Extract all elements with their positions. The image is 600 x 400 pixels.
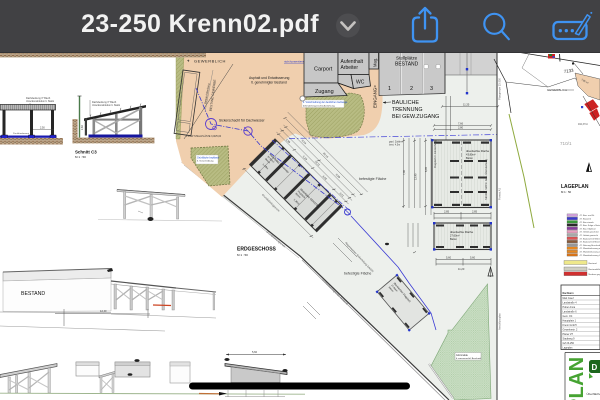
svg-text:43,80m²: 43,80m² [466, 153, 476, 157]
svg-text:23-250 Krenn02.pdf: 23-250 Krenn02.pdf [81, 10, 319, 38]
svg-text:6,95: 6,95 [424, 166, 428, 172]
svg-text:Zugang: Zugang [315, 89, 334, 95]
svg-text:Mair Josef: Mair Josef [563, 297, 574, 300]
svg-text:47. Bau- und St.: 47. Bau- und St. [580, 214, 595, 217]
svg-text:5,60: 5,60 [252, 350, 258, 354]
svg-text:überdachte Fläche: überdachte Fläche [450, 230, 474, 234]
svg-text:47. Bauwerk: 47. Bauwerk [580, 218, 593, 221]
svg-text:Format A1: Format A1 [498, 187, 502, 200]
svg-text:Punktfundament: Punktfundament [13, 132, 29, 135]
svg-text:BEI GEW.ZUGANG: BEI GEW.ZUGANG [392, 114, 439, 120]
svg-text:TRENNUNG: TRENNUNG [392, 107, 423, 113]
svg-text:PLAN: PLAN [566, 357, 588, 400]
svg-text:best. 4,5m: best. 4,5m [389, 143, 400, 146]
svg-text:47. Bauland mit Mischgebiet: 47. Bauland mit Mischgebiet [580, 241, 600, 244]
svg-text:lt. Vorschreibung der deutlich: lt. Vorschreibung der deutlichen Gehwege [303, 101, 348, 104]
svg-text:47. Bau Objektart: 47. Bau Objektart [580, 227, 597, 230]
svg-text:Carport: Carport [314, 67, 333, 73]
svg-text:3: 3 [430, 86, 433, 92]
svg-text:lt. genehmigter Bestand: lt. genehmigter Bestand [251, 81, 287, 85]
svg-text:Bestandsfläche: Bestandsfläche [589, 268, 600, 271]
svg-text:7,66: 7,66 [458, 122, 464, 126]
svg-text:Hauptplatz 1: Hauptplatz 1 [563, 320, 577, 323]
svg-text:BESTAND: BESTAND [21, 291, 45, 297]
svg-text:Stadtweg 9: Stadtweg 9 [563, 338, 576, 341]
svg-text:befestigte Fläche: befestigte Fläche [359, 177, 386, 181]
svg-text:D: D [592, 363, 598, 372]
svg-text:Landstraße 4: Landstraße 4 [563, 302, 578, 305]
svg-text:Schnitt C3: Schnitt C3 [75, 150, 97, 155]
svg-text:Mag.: Mag. [373, 58, 378, 67]
svg-text:Unterkonstruktion lt. Statik: Unterkonstruktion lt. Statik [92, 104, 121, 107]
svg-text:47. Bau einzeln: 47. Bau einzeln [580, 222, 595, 224]
svg-text:27,60m²: 27,60m² [450, 234, 460, 238]
svg-text:GEWERBLICH: GEWERBLICH [194, 59, 226, 64]
svg-text:befestigte Fläche: befestigte Fläche [344, 272, 371, 276]
svg-text:WC: WC [356, 80, 365, 86]
svg-text:47. Wandeinfassung Umsatz: 47. Wandeinfassung Umsatz [580, 251, 600, 254]
svg-text:47. Nutzung Beschreibung: 47. Nutzung Beschreibung [580, 244, 600, 247]
svg-text:Flugdach lt. Einreichung: Flugdach lt. Einreichung [433, 140, 437, 168]
svg-text:lt. wasserrechtl. Bescheid: lt. wasserrechtl. Bescheid [456, 357, 482, 360]
svg-text:BAULICHE: BAULICHE [392, 100, 419, 106]
svg-text:M 1 : 50: M 1 : 50 [561, 190, 572, 194]
svg-text:710/1: 710/1 [560, 141, 572, 146]
svg-text:47. Gebiet geschützt: 47. Gebiet geschützt [580, 231, 599, 234]
svg-text:lt. Vorschreibung: lt. Vorschreibung [197, 160, 214, 163]
svg-text:Gem. Ort: Gem. Ort [563, 315, 573, 318]
svg-text:BESTAND: BESTAND [395, 62, 419, 68]
svg-text:M 1 : 50: M 1 : 50 [237, 253, 248, 257]
svg-text:Beton: Beton [450, 237, 457, 241]
svg-text:7,90: 7,90 [402, 169, 406, 175]
svg-text:Gewerbestr. 2: Gewerbestr. 2 [563, 329, 579, 332]
svg-text:SENKR. MATR. best. Überdachung: SENKR. MATR. best. Überdachung [484, 159, 488, 200]
svg-text:11,20: 11,20 [458, 267, 465, 271]
svg-text:2,85: 2,85 [472, 210, 478, 214]
svg-text:Unterkonstruktion lt. Statik: Unterkonstruktion lt. Statik [26, 100, 55, 103]
svg-text:GZ 23-250: GZ 23-250 [563, 342, 575, 345]
svg-text:462,37m²: 462,37m² [578, 123, 588, 126]
svg-text:2: 2 [410, 86, 413, 92]
svg-text:Stellplätze: Stellplätze [396, 56, 418, 61]
svg-text:ERDGESCHOSS: ERDGESCHOSS [237, 247, 277, 253]
svg-text:Sickerschacht für Dachwasser: Sickerschacht für Dachwasser [219, 119, 265, 123]
svg-text:47. Wandeinfassung mit: 47. Wandeinfassung mit [580, 247, 600, 250]
svg-text:11,35: 11,35 [463, 103, 470, 107]
svg-text:12,40: 12,40 [414, 173, 418, 180]
svg-text:Neubau geplant: Neubau geplant [589, 273, 600, 276]
svg-text:GEWERBLICH: GEWERBLICH [547, 88, 567, 92]
svg-text:behindertengerechte Ausführung: behindertengerechte Ausführung [303, 104, 336, 107]
svg-text:1: 1 [388, 86, 391, 92]
svg-text:5,60: 5,60 [470, 256, 476, 260]
svg-text:47. Bau- Folge u.Nutzung: 47. Bau- Folge u.Nutzung [580, 224, 600, 227]
svg-text:2,50: 2,50 [40, 127, 45, 130]
svg-text:Landstraße 6: Landstraße 6 [563, 311, 578, 314]
svg-text:Überfläche: Überfläche [587, 392, 600, 396]
svg-text:Beton: Beton [466, 156, 473, 160]
svg-text:Grünfläche bepflanzt: Grünfläche bepflanzt [197, 157, 219, 160]
svg-text:2,85: 2,85 [444, 210, 450, 214]
svg-text:5,60: 5,60 [446, 256, 452, 260]
svg-text:Anschlussplan: Anschlussplan [498, 313, 502, 330]
svg-text:2,60: 2,60 [81, 125, 84, 130]
svg-text:M 1 : 50: M 1 : 50 [75, 155, 86, 159]
svg-text:Huber Anna: Huber Anna [563, 306, 576, 309]
svg-text:Plangrenze 23-250: Plangrenze 23-250 [498, 78, 502, 100]
svg-text:Arbeiter: Arbeiter [341, 65, 359, 71]
svg-text:Planer ZT: Planer ZT [563, 333, 574, 336]
svg-text:Asphalt und Entwässerung: Asphalt und Entwässerung [249, 76, 289, 80]
svg-text:47. Wandeinfassung Lage: 47. Wandeinfassung Lage [580, 255, 600, 257]
svg-text:Krenn GmbH: Krenn GmbH [563, 324, 577, 327]
svg-text:EINGANG>: EINGANG> [373, 85, 378, 108]
svg-text:Bestand: Bestand [589, 262, 598, 265]
svg-text:überdachte Fläche: überdachte Fläche [466, 149, 490, 153]
svg-text:2,80: 2,80 [458, 126, 464, 130]
svg-text:Nachbarn: Nachbarn [563, 292, 575, 295]
svg-text:4 PKW STELLPLÄTZE 3,00/5,00: 4 PKW STELLPLÄTZE 3,00/5,00 [186, 135, 222, 138]
svg-text:47. Bauland mit Wohngebiet: 47. Bauland mit Wohngebiet [580, 237, 600, 240]
svg-text:12,40: 12,40 [100, 309, 107, 313]
svg-text:Grünmulde: Grünmulde [456, 354, 468, 357]
svg-text:Lageplan: Lageplan [563, 347, 574, 350]
svg-text:47. Gebiet gemischt: 47. Gebiet gemischt [580, 234, 599, 237]
